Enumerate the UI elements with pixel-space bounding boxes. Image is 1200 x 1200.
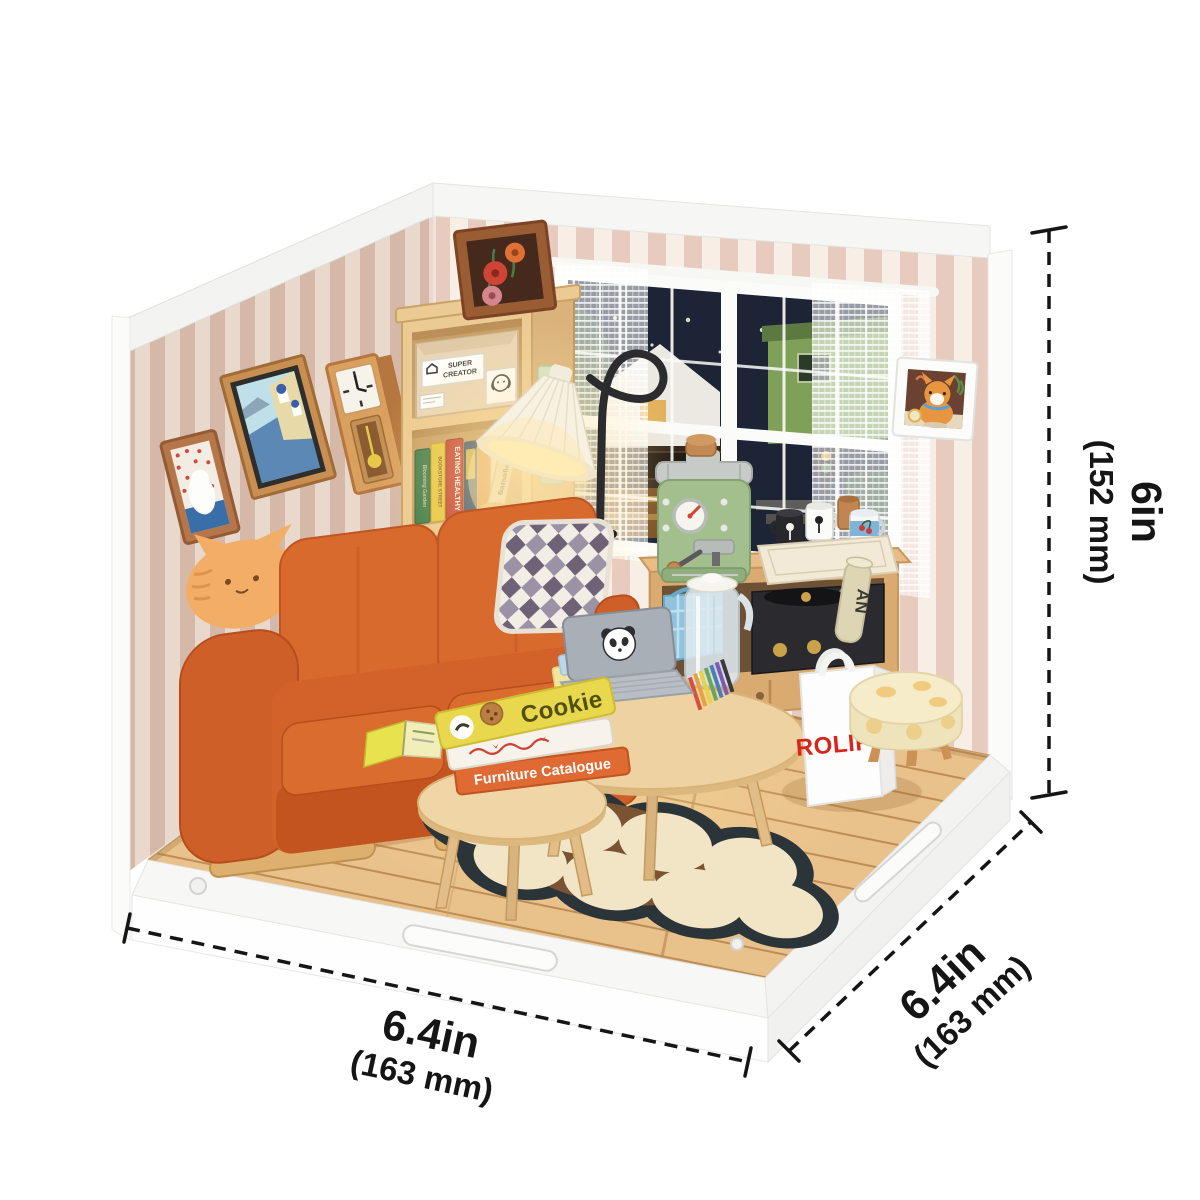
height-in-label: 6in	[1122, 481, 1170, 543]
base-screw-2	[731, 938, 743, 950]
poppy-picture	[454, 221, 556, 320]
right-wall-end-cap	[988, 250, 1012, 800]
white-mug	[806, 502, 838, 540]
left-wall-edge	[112, 316, 130, 940]
corgi-picture	[892, 357, 977, 440]
diorama-scene: I COFF	[0, 0, 1200, 1200]
base-screw	[190, 878, 206, 894]
product-dimension-illustration: I COFF	[0, 0, 1200, 1200]
height-mm-label: (152 mm)	[1083, 440, 1120, 585]
poster-text: AN	[851, 588, 873, 615]
dimension-height: 6in (152 mm)	[1032, 227, 1170, 798]
